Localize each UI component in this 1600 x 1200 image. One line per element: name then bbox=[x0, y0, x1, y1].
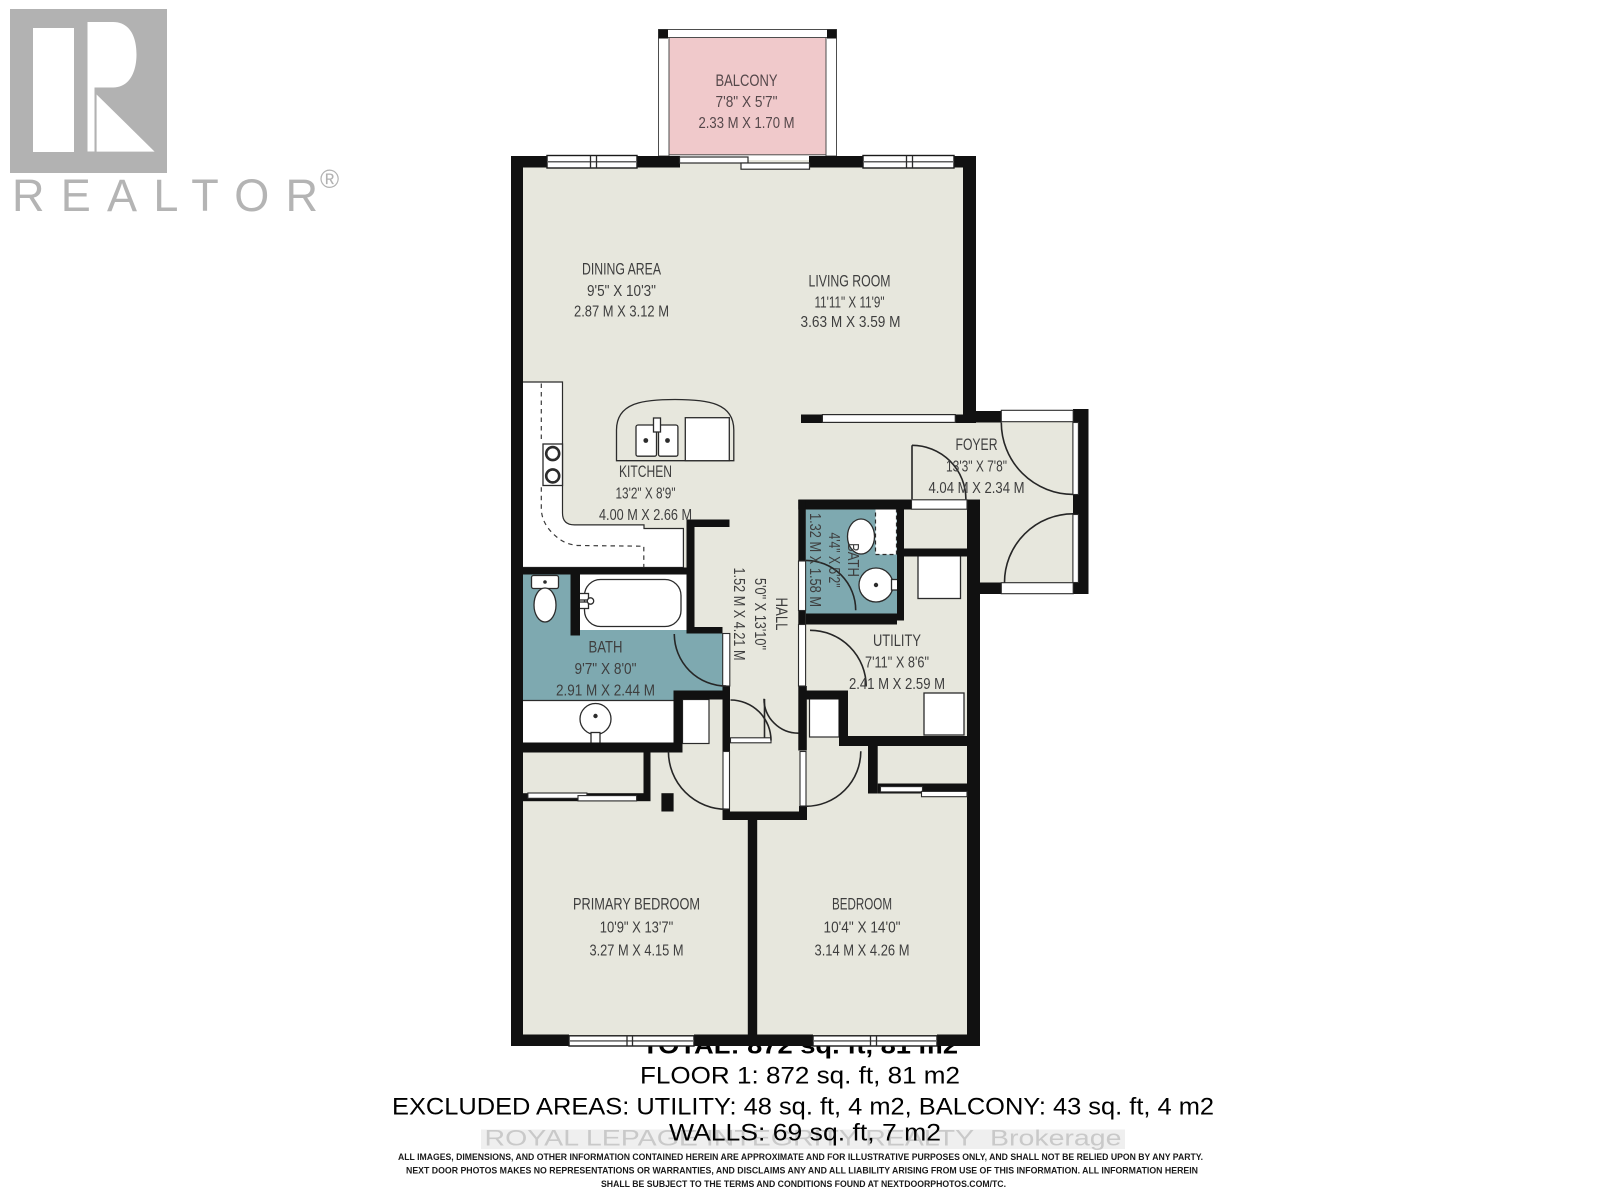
svg-text:13'2" X 8'9": 13'2" X 8'9" bbox=[616, 486, 676, 503]
svg-text:9'7" X 8'0": 9'7" X 8'0" bbox=[575, 661, 637, 678]
svg-text:BALCONY: BALCONY bbox=[716, 72, 778, 90]
svg-text:7'8" X 5'7": 7'8" X 5'7" bbox=[716, 94, 778, 111]
svg-text:10'4" X 14'0": 10'4" X 14'0" bbox=[824, 920, 901, 937]
svg-text:BATH: BATH bbox=[844, 543, 861, 577]
svg-text:4.00 M X 2.66 M: 4.00 M X 2.66 M bbox=[599, 507, 692, 524]
svg-text:NEXT DOOR PHOTOS MAKES NO REPR: NEXT DOOR PHOTOS MAKES NO REPRESENTATION… bbox=[406, 1166, 1198, 1176]
svg-text:WALLS: 69 sq. ft, 7 m2: WALLS: 69 sq. ft, 7 m2 bbox=[669, 1119, 941, 1146]
svg-text:ALL IMAGES, DIMENSIONS, AND OT: ALL IMAGES, DIMENSIONS, AND OTHER INFORM… bbox=[398, 1152, 1203, 1162]
svg-text:5'0" X 13'10": 5'0" X 13'10" bbox=[751, 578, 768, 650]
svg-text:SHALL BE SUBJECT TO THE TERMS: SHALL BE SUBJECT TO THE TERMS AND CONDIT… bbox=[601, 1179, 1006, 1189]
svg-text:11'11" X 11'9": 11'11" X 11'9" bbox=[815, 295, 885, 312]
svg-text:®: ® bbox=[320, 164, 339, 194]
svg-text:KITCHEN: KITCHEN bbox=[619, 463, 672, 481]
svg-text:4'4" X 5'2": 4'4" X 5'2" bbox=[825, 533, 842, 588]
svg-text:LIVING ROOM: LIVING ROOM bbox=[809, 272, 891, 290]
svg-text:7'11" X 8'6": 7'11" X 8'6" bbox=[865, 655, 929, 672]
svg-text:9'5" X 10'3": 9'5" X 10'3" bbox=[587, 283, 656, 300]
svg-text:1.52 M X 4.21 M: 1.52 M X 4.21 M bbox=[730, 568, 747, 661]
svg-text:3.63 M X 3.59 M: 3.63 M X 3.59 M bbox=[801, 314, 901, 331]
svg-text:HALL: HALL bbox=[772, 598, 790, 631]
svg-text:2.33 M X 1.70 M: 2.33 M X 1.70 M bbox=[699, 115, 795, 132]
svg-text:FLOOR 1: 872 sq. ft, 81 m2: FLOOR 1: 872 sq. ft, 81 m2 bbox=[640, 1063, 960, 1090]
svg-text:3.27 M X 4.15 M: 3.27 M X 4.15 M bbox=[590, 943, 684, 960]
svg-text:UTILITY: UTILITY bbox=[873, 632, 921, 650]
svg-text:EXCLUDED AREAS: UTILITY: 48 sq: EXCLUDED AREAS: UTILITY: 48 sq. ft, 4 m2… bbox=[392, 1093, 1214, 1120]
svg-text:DINING AREA: DINING AREA bbox=[582, 261, 661, 279]
svg-text:PRIMARY BEDROOM: PRIMARY BEDROOM bbox=[573, 896, 700, 914]
svg-text:10'9" X 13'7": 10'9" X 13'7" bbox=[600, 920, 674, 937]
svg-text:4.04 M X 2.34 M: 4.04 M X 2.34 M bbox=[929, 480, 1025, 497]
svg-text:2.87 M X 3.12 M: 2.87 M X 3.12 M bbox=[574, 304, 669, 321]
svg-text:BATH: BATH bbox=[589, 639, 623, 657]
svg-text:2.41 M X 2.59 M: 2.41 M X 2.59 M bbox=[849, 676, 945, 693]
svg-text:FOYER: FOYER bbox=[956, 436, 998, 454]
svg-text:2.91 M X 2.44 M: 2.91 M X 2.44 M bbox=[556, 683, 655, 700]
svg-text:3.14 M X 4.26 M: 3.14 M X 4.26 M bbox=[815, 943, 910, 960]
svg-text:BEDROOM: BEDROOM bbox=[832, 896, 892, 914]
svg-text:1.32 M X 1.58 M: 1.32 M X 1.58 M bbox=[806, 513, 823, 607]
svg-text:13'3" X 7'8": 13'3" X 7'8" bbox=[946, 459, 1007, 476]
